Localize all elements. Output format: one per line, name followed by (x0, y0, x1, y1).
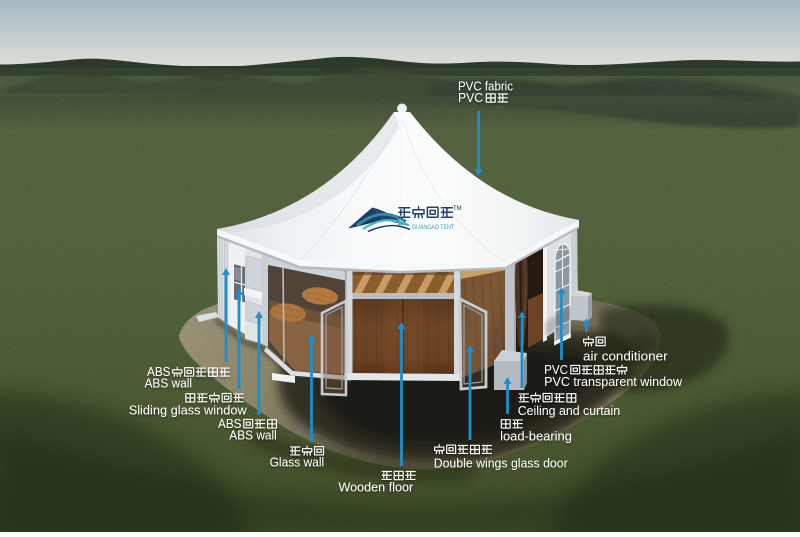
svg-text:air conditioner: air conditioner (583, 349, 668, 364)
svg-text:load-bearing: load-bearing (500, 429, 572, 444)
svg-text:Wooden floor: Wooden floor (339, 480, 414, 495)
svg-text:Double wings glass door: Double wings glass door (434, 456, 569, 471)
svg-text:GUANGAO TENT: GUANGAO TENT (412, 224, 454, 231)
svg-text:Glass wall: Glass wall (270, 455, 325, 470)
svg-text:Ceiling and curtain: Ceiling and curtain (518, 403, 621, 418)
svg-text:PVC: PVC (458, 90, 483, 105)
svg-text:ABS wall: ABS wall (145, 376, 193, 391)
svg-text:TM: TM (453, 206, 462, 212)
svg-text:PVC transparent window: PVC transparent window (544, 374, 682, 389)
svg-text:ABS wall: ABS wall (229, 428, 277, 443)
